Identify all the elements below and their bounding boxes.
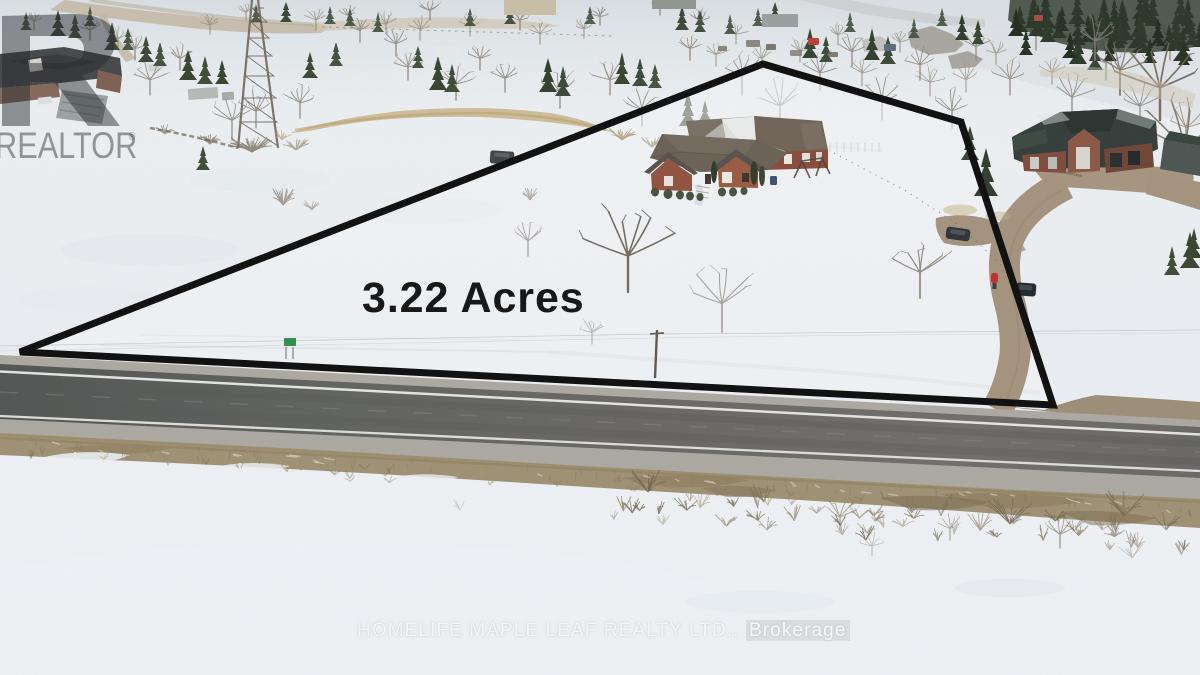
svg-text:REALTOR: REALTOR — [0, 125, 137, 166]
svg-text:®: ® — [129, 131, 136, 143]
